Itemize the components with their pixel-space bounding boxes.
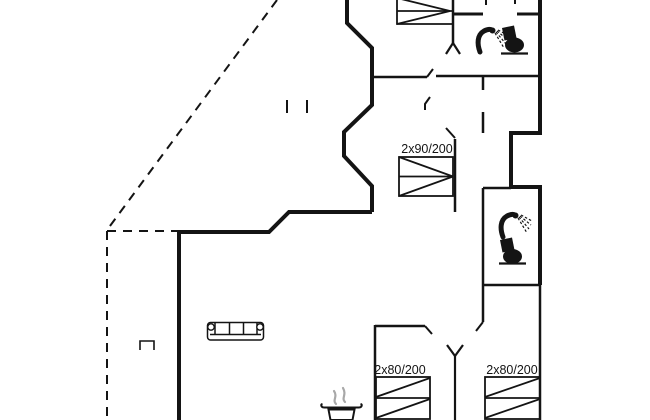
bed-bottom-left: [376, 377, 430, 419]
bed-size-label: 2x80/200: [486, 363, 537, 377]
bed-double-middle: [399, 157, 453, 196]
exterior-walls: [179, 0, 542, 420]
door-tick: [425, 326, 432, 334]
terrace-post-marks: [287, 100, 307, 113]
fork-arm: [453, 43, 460, 54]
door-tick: [476, 322, 483, 331]
terrace-fixture-icon: [140, 341, 154, 350]
door-tick: [427, 69, 433, 77]
terrace-roofline-diagonal: [107, 0, 277, 230]
wall-left-zigzag: [344, 0, 372, 212]
door-tick: [446, 128, 455, 138]
top-door-ticks: [486, 0, 515, 5]
fork-arm: [447, 345, 455, 356]
sofa-icon: [208, 323, 264, 341]
shower-icon: [501, 213, 532, 238]
bed-bottom-right: [485, 377, 540, 419]
fork-arm: [446, 43, 453, 54]
wall-right-notch: [511, 0, 542, 187]
partition-fork-symbols: [446, 43, 463, 420]
bed-size-label: 2x80/200: [374, 363, 425, 377]
floor-plan-drawing: 2x90/200 2x80/200 2x80/200: [0, 0, 650, 420]
toilet-icon: [499, 238, 526, 265]
bed-top-cut: [397, 0, 453, 24]
toilet-icon: [501, 26, 528, 54]
floor-plan-page: 2x90/200 2x80/200 2x80/200: [0, 0, 650, 420]
fork-arm: [455, 345, 463, 356]
steaming-pot-icon: [321, 388, 361, 420]
steam-lines: [334, 388, 345, 404]
bed-size-label: 2x90/200: [401, 142, 452, 156]
door-tick: [425, 97, 430, 110]
terrace-outline: [107, 0, 277, 420]
